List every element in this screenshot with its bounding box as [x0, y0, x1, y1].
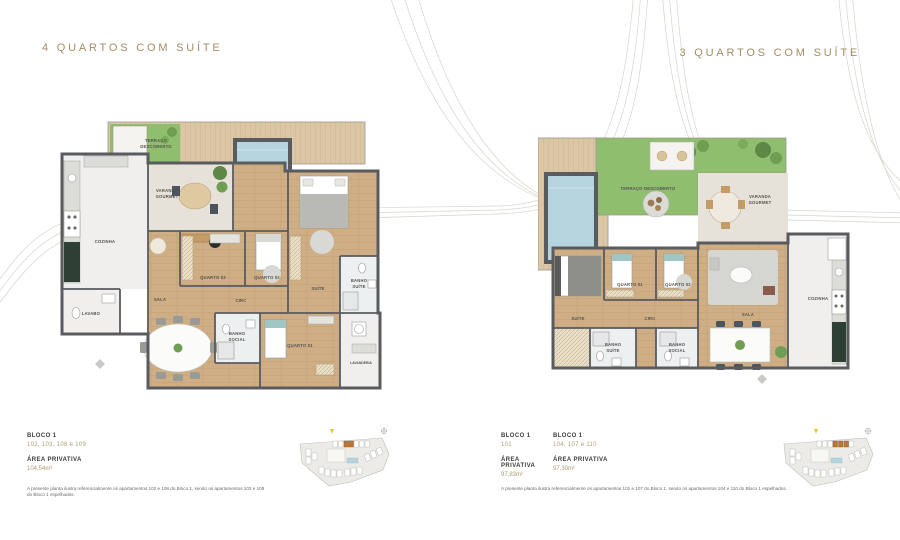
room-label-cozinha: COZINHA [95, 239, 115, 244]
highlighted-units [833, 441, 849, 447]
room-label-circ: CIRC [235, 298, 246, 303]
marker-icon [330, 429, 334, 434]
marker-icon [814, 429, 818, 434]
unit-numbers: 102, 103, 108 e 109 [27, 442, 167, 448]
room-label-varanda-1: VARANDA [749, 194, 771, 199]
room-label-terraco-1: TERRAÇO [145, 138, 168, 143]
room-label-banho-suite-2: SUÍTE [606, 348, 619, 353]
bloco-label: BLOCO 1 [27, 433, 167, 439]
floorplan-3-quartos: TERRAÇO DESCOBERTO VARANDA GOURMET COZIN… [538, 130, 852, 384]
bloco-label: BLOCO 1 [501, 433, 549, 439]
room-label-banho-social-1: BANHO [669, 342, 686, 347]
room-label-banho-social-1: BANHO [229, 331, 246, 336]
area-privativa-value: 97,83m² [501, 472, 549, 478]
room-label-varanda-1: VARANDA [156, 188, 178, 193]
room-label-quarto2: QUARTO 02 [254, 275, 280, 280]
unit-numbers: 104, 107 e 110 [553, 442, 693, 448]
compass-icon [381, 428, 388, 435]
room-label-banho-suite-1: BANHO [605, 342, 622, 347]
room-label-quarto3: QUARTO 03 [200, 275, 226, 280]
room-label-quarto1: QUARTO 01 [617, 282, 643, 287]
page-title-left: 4 QUARTOS COM SUÍTE [42, 42, 223, 54]
info-block-right-2: BLOCO 1 104, 107 e 110 ÁREA PRIVATIVA 97… [553, 433, 693, 472]
unit-numbers: 101 [501, 442, 549, 448]
area-privativa-label: ÁREA PRIVATIVA [553, 457, 693, 463]
floorplan-4-quartos: TERRAÇO DESCOBERTO VARANDA GOURMET COZIN… [60, 116, 392, 394]
room-label-cozinha: COZINHA [808, 296, 828, 301]
room-label-quarto1: QUARTO 01 [287, 343, 313, 348]
room-label-quarto2: QUARTO 02 [665, 282, 691, 287]
room-label-banho-suite-2: SUÍTE [352, 284, 365, 289]
compass-icon [865, 428, 872, 435]
area-privativa-value: 104,54m² [27, 466, 167, 472]
bloco-label: BLOCO 1 [553, 433, 693, 439]
area-privativa-label: ÁREA PRIVATIVA [501, 457, 549, 469]
room-label-circ: CIRC [644, 316, 655, 321]
info-block-left: BLOCO 1 102, 103, 108 e 109 ÁREA PRIVATI… [27, 433, 167, 472]
info-block-right-1: BLOCO 1 101 ÁREA PRIVATIVA 97,83m² [501, 433, 549, 478]
room-label-terraco-2: DESCOBERTO [140, 144, 172, 149]
room-label-banho-suite-1: BANHO [351, 278, 368, 283]
room-label-sala: SALA [154, 297, 166, 302]
site-keyplan-right [777, 427, 877, 495]
room-label-suite: SUÍTE [311, 286, 324, 291]
room-label-sala: SALA [742, 312, 754, 317]
area-privativa-value: 97,30m² [553, 466, 693, 472]
room-label-lavanderia: LAVANDERIA [350, 361, 372, 365]
area-privativa-label: ÁREA PRIVATIVA [27, 457, 167, 463]
room-label-varanda-2: GOURMET [749, 200, 772, 205]
room-label-lavabo: LAVABO [82, 311, 101, 316]
room-label-terraco: TERRAÇO DESCOBERTO [621, 186, 676, 191]
room-label-banho-social-2: SOCIAL [228, 337, 245, 342]
room-label-varanda-2: GOURMET [156, 194, 179, 199]
site-keyplan-left [293, 427, 393, 495]
room-label-banho-social-2: SOCIAL [668, 348, 685, 353]
room-label-suite: SUÍTE [571, 316, 584, 321]
disclaimer-left: A presente planta ilustra referencialmen… [27, 486, 267, 498]
page-title-right: 3 QUARTOS COM SUÍTE [679, 47, 860, 59]
